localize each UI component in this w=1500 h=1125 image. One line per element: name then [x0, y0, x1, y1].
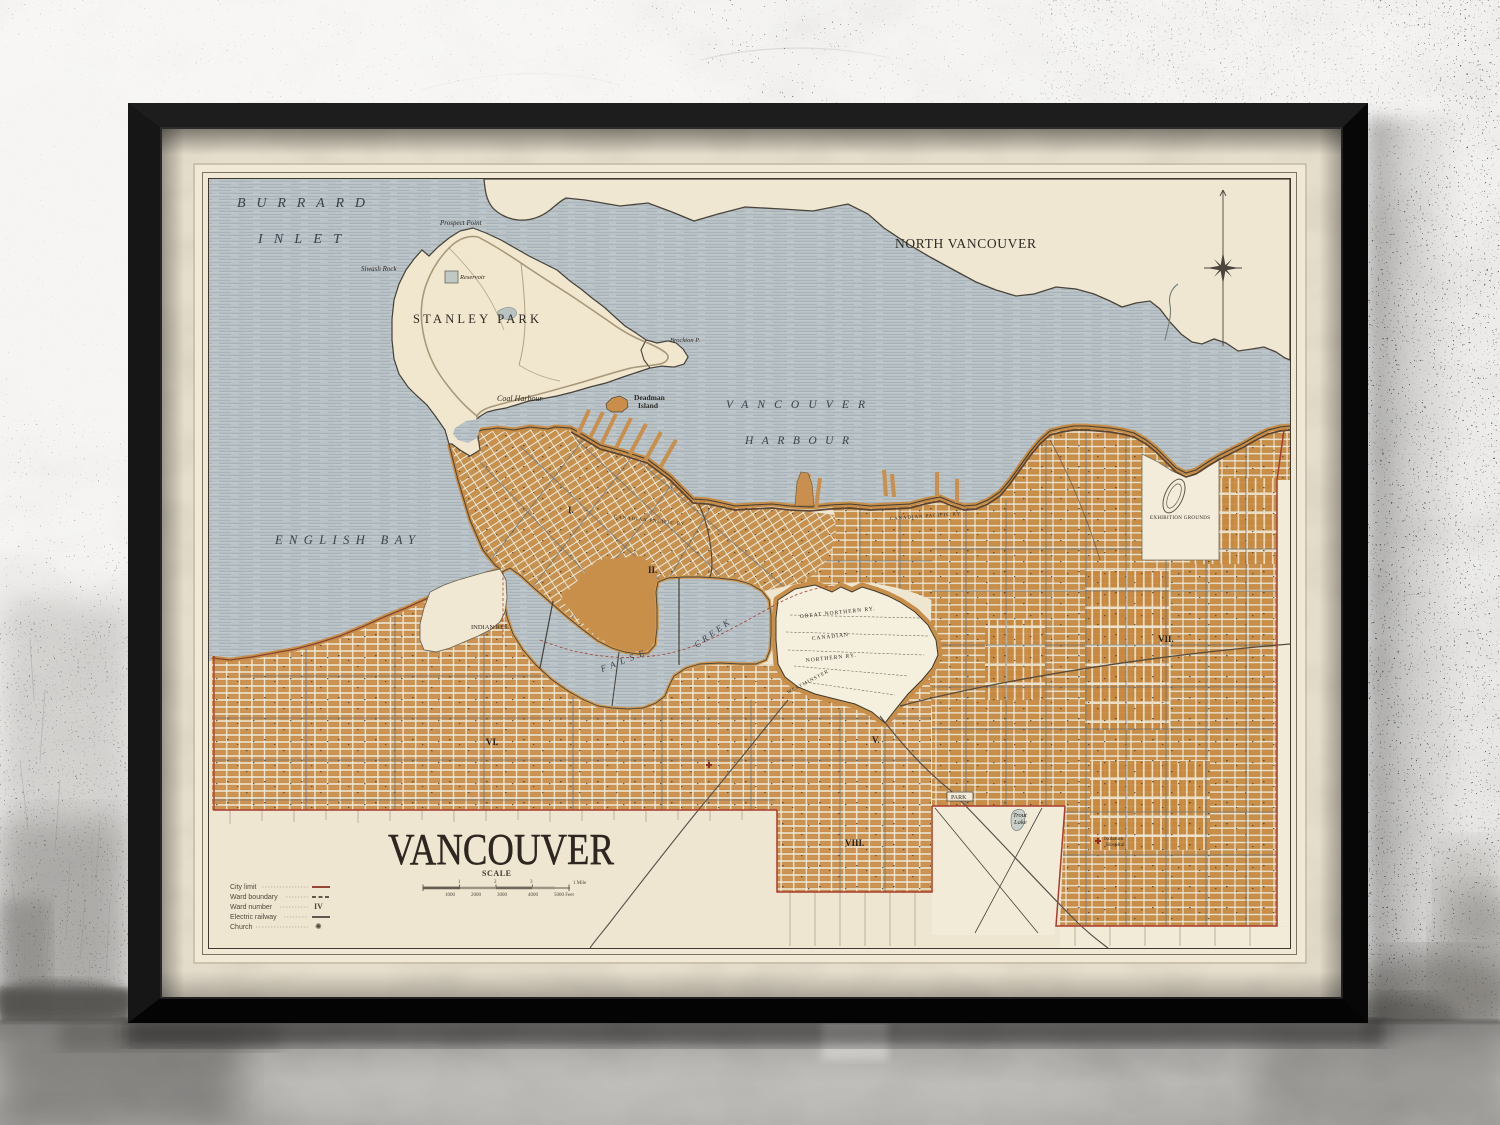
- svg-text:INLET: INLET: [257, 232, 350, 247]
- svg-text:NORTH VANCOUVER: NORTH VANCOUVER: [895, 236, 1039, 251]
- svg-text:3000: 3000: [497, 893, 508, 898]
- svg-text:PARK: PARK: [951, 795, 967, 801]
- svg-text:4000: 4000: [528, 893, 539, 898]
- svg-text:VIII.: VIII.: [845, 838, 864, 848]
- svg-text:VANCOUVER: VANCOUVER: [726, 399, 871, 411]
- svg-text:Hospital: Hospital: [1106, 842, 1125, 848]
- svg-text:VI.: VI.: [486, 737, 498, 747]
- svg-text:Brockton P.: Brockton P.: [670, 337, 700, 344]
- svg-text:Island: Island: [638, 401, 659, 410]
- svg-text:Coal Harbour: Coal Harbour: [497, 394, 543, 403]
- svg-text:✺: ✺: [315, 922, 322, 931]
- svg-text:1000: 1000: [445, 893, 456, 898]
- svg-text:City limit: City limit: [230, 884, 256, 891]
- svg-text:Prospect Point: Prospect Point: [439, 219, 483, 227]
- svg-text:Trout: Trout: [1013, 812, 1027, 819]
- svg-text:VANCOUVER: VANCOUVER: [388, 825, 615, 874]
- svg-text:Electric railway: Electric railway: [230, 914, 277, 921]
- svg-text:2000: 2000: [471, 893, 482, 898]
- svg-text:Lake: Lake: [1013, 819, 1027, 826]
- svg-text:INDIAN RES.: INDIAN RES.: [471, 624, 510, 631]
- svg-text:Church: Church: [230, 924, 253, 931]
- svg-text:SCALE: SCALE: [482, 869, 514, 878]
- svg-text:5000 Feet: 5000 Feet: [554, 893, 574, 898]
- svg-text:IV: IV: [314, 902, 323, 911]
- svg-text:1 Mile: 1 Mile: [573, 881, 587, 886]
- svg-text:STANLEY PARK: STANLEY PARK: [413, 312, 546, 326]
- svg-text:Ward boundary: Ward boundary: [230, 894, 278, 901]
- svg-text:Ward number: Ward number: [230, 904, 273, 911]
- svg-text:V.: V.: [872, 735, 880, 745]
- svg-text:II.: II.: [648, 565, 657, 575]
- svg-text:EXHIBITION GROUNDS: EXHIBITION GROUNDS: [1150, 516, 1210, 521]
- svg-text:Siwash Rock: Siwash Rock: [361, 265, 397, 273]
- svg-text:ENGLISH BAY: ENGLISH BAY: [274, 533, 422, 547]
- svg-text:I.: I.: [568, 505, 574, 515]
- svg-text:VII.: VII.: [1158, 634, 1174, 644]
- svg-text:Reservoir: Reservoir: [459, 274, 486, 281]
